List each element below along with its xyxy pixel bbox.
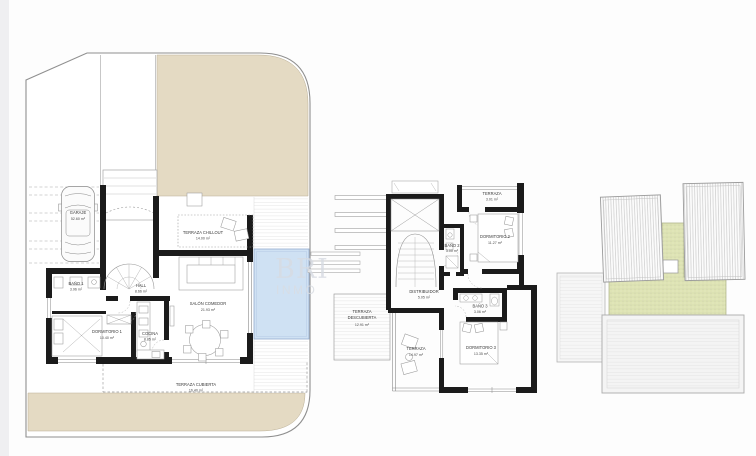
garaje-label: GARAJE [70,210,87,215]
dormitorio2-area: 11.27 m² [488,241,503,245]
sloped-roof-left [600,195,663,282]
garaje-area: 52.60 m² [71,217,86,221]
terraza-descubierta [334,294,390,360]
wall [100,185,106,290]
bano3-area: 3.06 m² [474,310,487,314]
watermark-line2: INMO [276,283,317,297]
garden-area-top [157,55,308,196]
terraza-dorm2-label: TERRAZA [482,191,501,196]
cocina-area: 8.85 m² [144,338,157,342]
distribuidor-area: 5.05 m² [418,296,431,300]
left-edge-shade [0,0,9,456]
chillout-area: 14.00 m² [196,237,211,241]
outdoor-table [187,193,202,206]
dormitorio3-label: DORMITORIO 3 [466,345,497,350]
chillout-label: TERRAZA CHILLOUT [183,230,224,235]
terraza-descubierta-label1: TERRAZA [352,309,371,314]
entry-steps [103,170,157,220]
ground-floor-plan: GARAJE 52.60 m² [26,53,310,437]
watermark-line1: BRI [275,254,329,285]
terraza-dorm2-area: 3.01 m² [486,198,499,202]
dormitorio1-label: DORMITORIO 1 [92,329,123,334]
car-icon [59,187,98,262]
terraza-cubierta-label: TERRAZA CUBIERTA [176,382,217,387]
garden-area-bottom [28,393,305,431]
terraza-area: 14.97 m² [409,353,424,357]
floorplan-canvas: GARAJE 52.60 m² [0,0,756,456]
roof-chimney [663,260,678,273]
wall [153,196,159,278]
terraza-label: TERRAZA [406,346,425,351]
cocina-label: COCINA [142,331,158,336]
dormitorio2-label: DORMITORIO 2 [480,234,511,239]
bano1-label: BAÑO 1 [68,281,84,286]
roof-landing [392,181,438,193]
terraza-cubierta-area: 16.40 m² [189,388,204,392]
salon-label: SALÓN COMEDOR [190,301,226,306]
bano2-area: 3.00 m² [446,249,459,253]
dormitorio3-area: 13.35 m² [474,352,489,356]
bano2-label: BAÑO 2 [444,243,460,248]
bano3-label: BAÑO 3 [472,304,488,309]
distribuidor-label: DISTRIBUIDOR [409,289,438,294]
dormitorio1-area: 10.40 m² [100,336,115,340]
sloped-roof-right [683,182,745,280]
hall-label: HALL [136,283,147,288]
hall-area: 8.66 m² [135,290,148,294]
bano1-area: 3.96 m² [70,288,83,292]
floorplan-sheet: GARAJE 52.60 m² [0,0,756,456]
salon-area: 21.93 m² [201,308,216,312]
terraza-descubierta-area: 12.91 m² [355,323,370,327]
terraza-descubierta-label2: DESCUBIERTA [348,315,377,320]
